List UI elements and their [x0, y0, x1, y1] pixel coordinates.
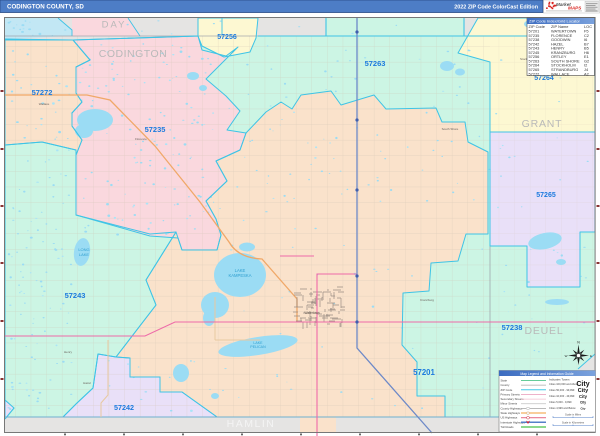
svg-text:57272: 57272	[32, 88, 53, 97]
svg-text:State: State	[501, 379, 508, 383]
svg-text:County: County	[501, 383, 510, 387]
svg-text:57243: 57243	[65, 291, 86, 300]
svg-text:Cities 50,000 - 99,999: Cities 50,000 - 99,999	[549, 388, 575, 392]
svg-text:Hazel: Hazel	[83, 381, 91, 385]
svg-text:W: W	[565, 354, 568, 358]
svg-text:KAMPESKA: KAMPESKA	[228, 273, 251, 278]
svg-text:Cities 5,000 - 9,999: Cities 5,000 - 9,999	[549, 400, 572, 404]
svg-text:DAY: DAY	[102, 20, 127, 31]
svg-text:ZIP Code Index/Grid Locator: ZIP Code Index/Grid Locator	[529, 19, 581, 24]
svg-text:Watertown: Watertown	[304, 311, 319, 315]
svg-text:Map Legend and Information Gui: Map Legend and Information Guide	[520, 372, 573, 376]
svg-text:Minor Streets: Minor Streets	[501, 402, 518, 406]
svg-text:57201: 57201	[413, 368, 435, 377]
svg-text:Cities 4,999 and Below: Cities 4,999 and Below	[549, 406, 576, 410]
svg-text:Florence: Florence	[135, 137, 147, 141]
svg-text:57272: 57272	[529, 71, 540, 76]
svg-text:57235: 57235	[145, 125, 166, 134]
svg-text:Indicates Towns: Indicates Towns	[549, 378, 570, 382]
svg-text:City: City	[581, 407, 586, 411]
svg-text:57242: 57242	[114, 403, 134, 412]
svg-text:Toll Roads: Toll Roads	[501, 425, 515, 429]
svg-text:LAKE: LAKE	[79, 252, 90, 257]
svg-text:Cities 10,000 - 49,999: Cities 10,000 - 49,999	[549, 394, 575, 398]
svg-text:MAPS: MAPS	[568, 6, 582, 11]
svg-text:Wallace: Wallace	[39, 102, 50, 106]
svg-text:Scale in Kilometers: Scale in Kilometers	[562, 421, 585, 425]
svg-text:E: E	[590, 354, 592, 358]
svg-text:PELICAN: PELICAN	[250, 345, 266, 349]
svg-text:DEUEL: DEUEL	[524, 325, 563, 337]
svg-text:Cities 100,000 and Above: Cities 100,000 and Above	[549, 382, 579, 386]
svg-text:GRANT: GRANT	[522, 118, 563, 130]
svg-text:South Shore: South Shore	[442, 127, 459, 131]
svg-text:2022 ZIP Code ColorCast Editio: 2022 ZIP Code ColorCast Edition	[454, 5, 538, 11]
svg-text:State Highways: State Highways	[501, 411, 521, 415]
svg-text:Primary Streets: Primary Streets	[501, 392, 521, 396]
svg-text:Henry: Henry	[64, 350, 73, 354]
svg-text:Scale in Miles: Scale in Miles	[565, 413, 582, 417]
svg-text:City: City	[580, 401, 586, 405]
svg-text:US Highways: US Highways	[501, 416, 518, 420]
svg-text:Kranzburg: Kranzburg	[420, 298, 434, 302]
svg-text:WALLACE: WALLACE	[551, 71, 570, 76]
svg-text:County Highways: County Highways	[501, 406, 523, 410]
svg-text:57265: 57265	[536, 192, 556, 199]
svg-text:57238: 57238	[502, 323, 523, 332]
svg-text:57256: 57256	[217, 34, 237, 41]
svg-text:City: City	[579, 394, 588, 399]
svg-text:Secondary Streets: Secondary Streets	[501, 397, 525, 401]
svg-text:A2: A2	[584, 71, 589, 76]
svg-text:57263: 57263	[365, 59, 386, 68]
svg-text:HAMLIN: HAMLIN	[227, 418, 276, 430]
svg-text:ZIP Code: ZIP Code	[501, 388, 513, 392]
svg-text:CODINGTON COUNTY, SD: CODINGTON COUNTY, SD	[7, 4, 84, 11]
svg-text:CODINGTON: CODINGTON	[99, 48, 167, 60]
